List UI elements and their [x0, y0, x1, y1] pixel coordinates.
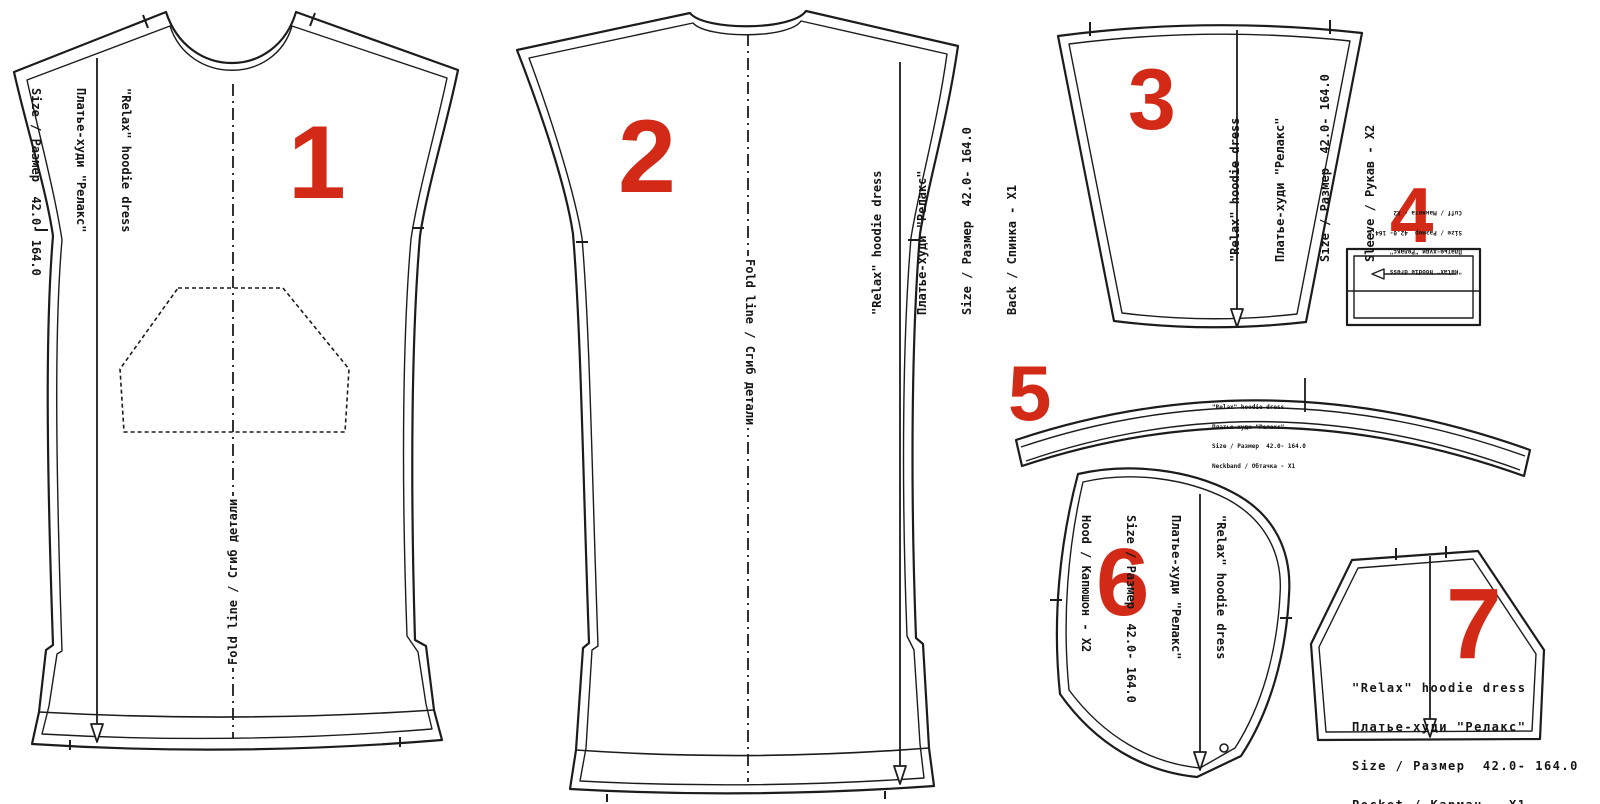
label-line: Size / Размер 42.0- 164.0	[28, 88, 43, 276]
piece-3-number: 3	[1128, 57, 1176, 143]
label-line: "Relax" hoodie dress	[1213, 515, 1228, 703]
sewing-pattern-sheet: 1 2 3 4 5 6 7 "Relax" hoodie dress Плать…	[0, 0, 1600, 804]
label-line: "Relax" hoodie dress	[1368, 268, 1462, 275]
piece-1-number: 1	[288, 111, 346, 215]
label-line: Size / Размер 42.0- 164.0	[1368, 229, 1462, 236]
label-line: Платье-худи "Релакс"	[1212, 425, 1306, 432]
piece-7-label: "Relax" hoodie dress Платье-худи "Релакс…	[1352, 656, 1579, 804]
label-line: Back / Спинка - X1	[1005, 127, 1020, 315]
label-line: "Relax" hoodie dress	[118, 88, 133, 276]
label-line: Платье-худи "Релакс"	[915, 127, 930, 315]
piece-6-label: "Relax" hoodie dress Платье-худи "Релакс…	[1048, 515, 1258, 703]
label-line: Size / Размер 42.0- 164.0	[1123, 515, 1138, 703]
piece-5-number: 5	[1008, 354, 1051, 432]
label-line: Hood / Капюшон - X2	[1078, 515, 1093, 703]
label-line: Size / Размер 42.0- 164.0	[1212, 444, 1306, 451]
piece-1-pocket-dashed-outline	[120, 288, 349, 432]
piece-5-label: "Relax" hoodie dress Платье-худи "Релакс…	[1212, 392, 1306, 483]
piece-2-number: 2	[618, 105, 676, 209]
label-line: Cuff / Манжета - X2	[1368, 209, 1462, 216]
label-line: Size / Размер 42.0- 164.0	[960, 127, 975, 315]
fold-line-label-front: Fold line / Сгиб детали	[226, 496, 240, 668]
label-line: Neckband / Обтачка - X1	[1212, 464, 1306, 471]
label-line: Size / Размер 42.0- 164.0	[1318, 74, 1333, 262]
label-line: "Relax" hoodie dress	[1352, 682, 1579, 695]
piece-1-label: "Relax" hoodie dress Платье-худи "Релакс…	[0, 88, 163, 276]
label-line: Платье-худи "Релакс"	[73, 88, 88, 276]
label-line: Size / Размер 42.0- 164.0	[1352, 760, 1579, 773]
label-line: Платье-худи "Релакс"	[1368, 248, 1462, 255]
piece-4-label: "Relax" hoodie dress Платье-худи "Релакс…	[1368, 196, 1462, 287]
label-line: "Relax" hoodie dress	[1228, 74, 1243, 262]
piece-6-eyelet-mark	[1220, 744, 1228, 752]
label-line: "Relax" hoodie dress	[1212, 405, 1306, 412]
piece-2-label: "Relax" hoodie dress Платье-худи "Релакс…	[840, 127, 1050, 315]
label-line: "Relax" hoodie dress	[870, 127, 885, 315]
label-line: Pocket / Карман - X1	[1352, 799, 1579, 804]
fold-line-label-back: Fold line / Сгиб детали	[743, 256, 757, 428]
label-line: Платье-худи "Релакс"	[1168, 515, 1183, 703]
piece-1-grain-arrowhead	[91, 724, 103, 742]
label-line: Платье-худи "Релакс"	[1352, 721, 1579, 734]
label-line: Платье-худи "Релакс"	[1273, 74, 1288, 262]
piece-2-grain-arrowhead	[894, 766, 906, 784]
